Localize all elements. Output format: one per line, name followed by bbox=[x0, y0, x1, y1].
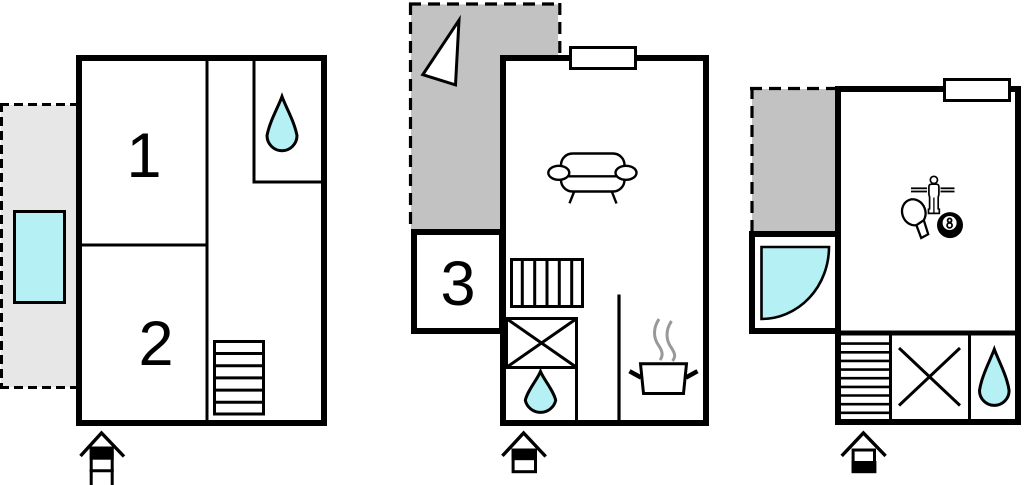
svg-text:2: 2 bbox=[138, 309, 173, 379]
svg-text:1: 1 bbox=[126, 121, 161, 191]
svg-text:3: 3 bbox=[440, 249, 475, 319]
